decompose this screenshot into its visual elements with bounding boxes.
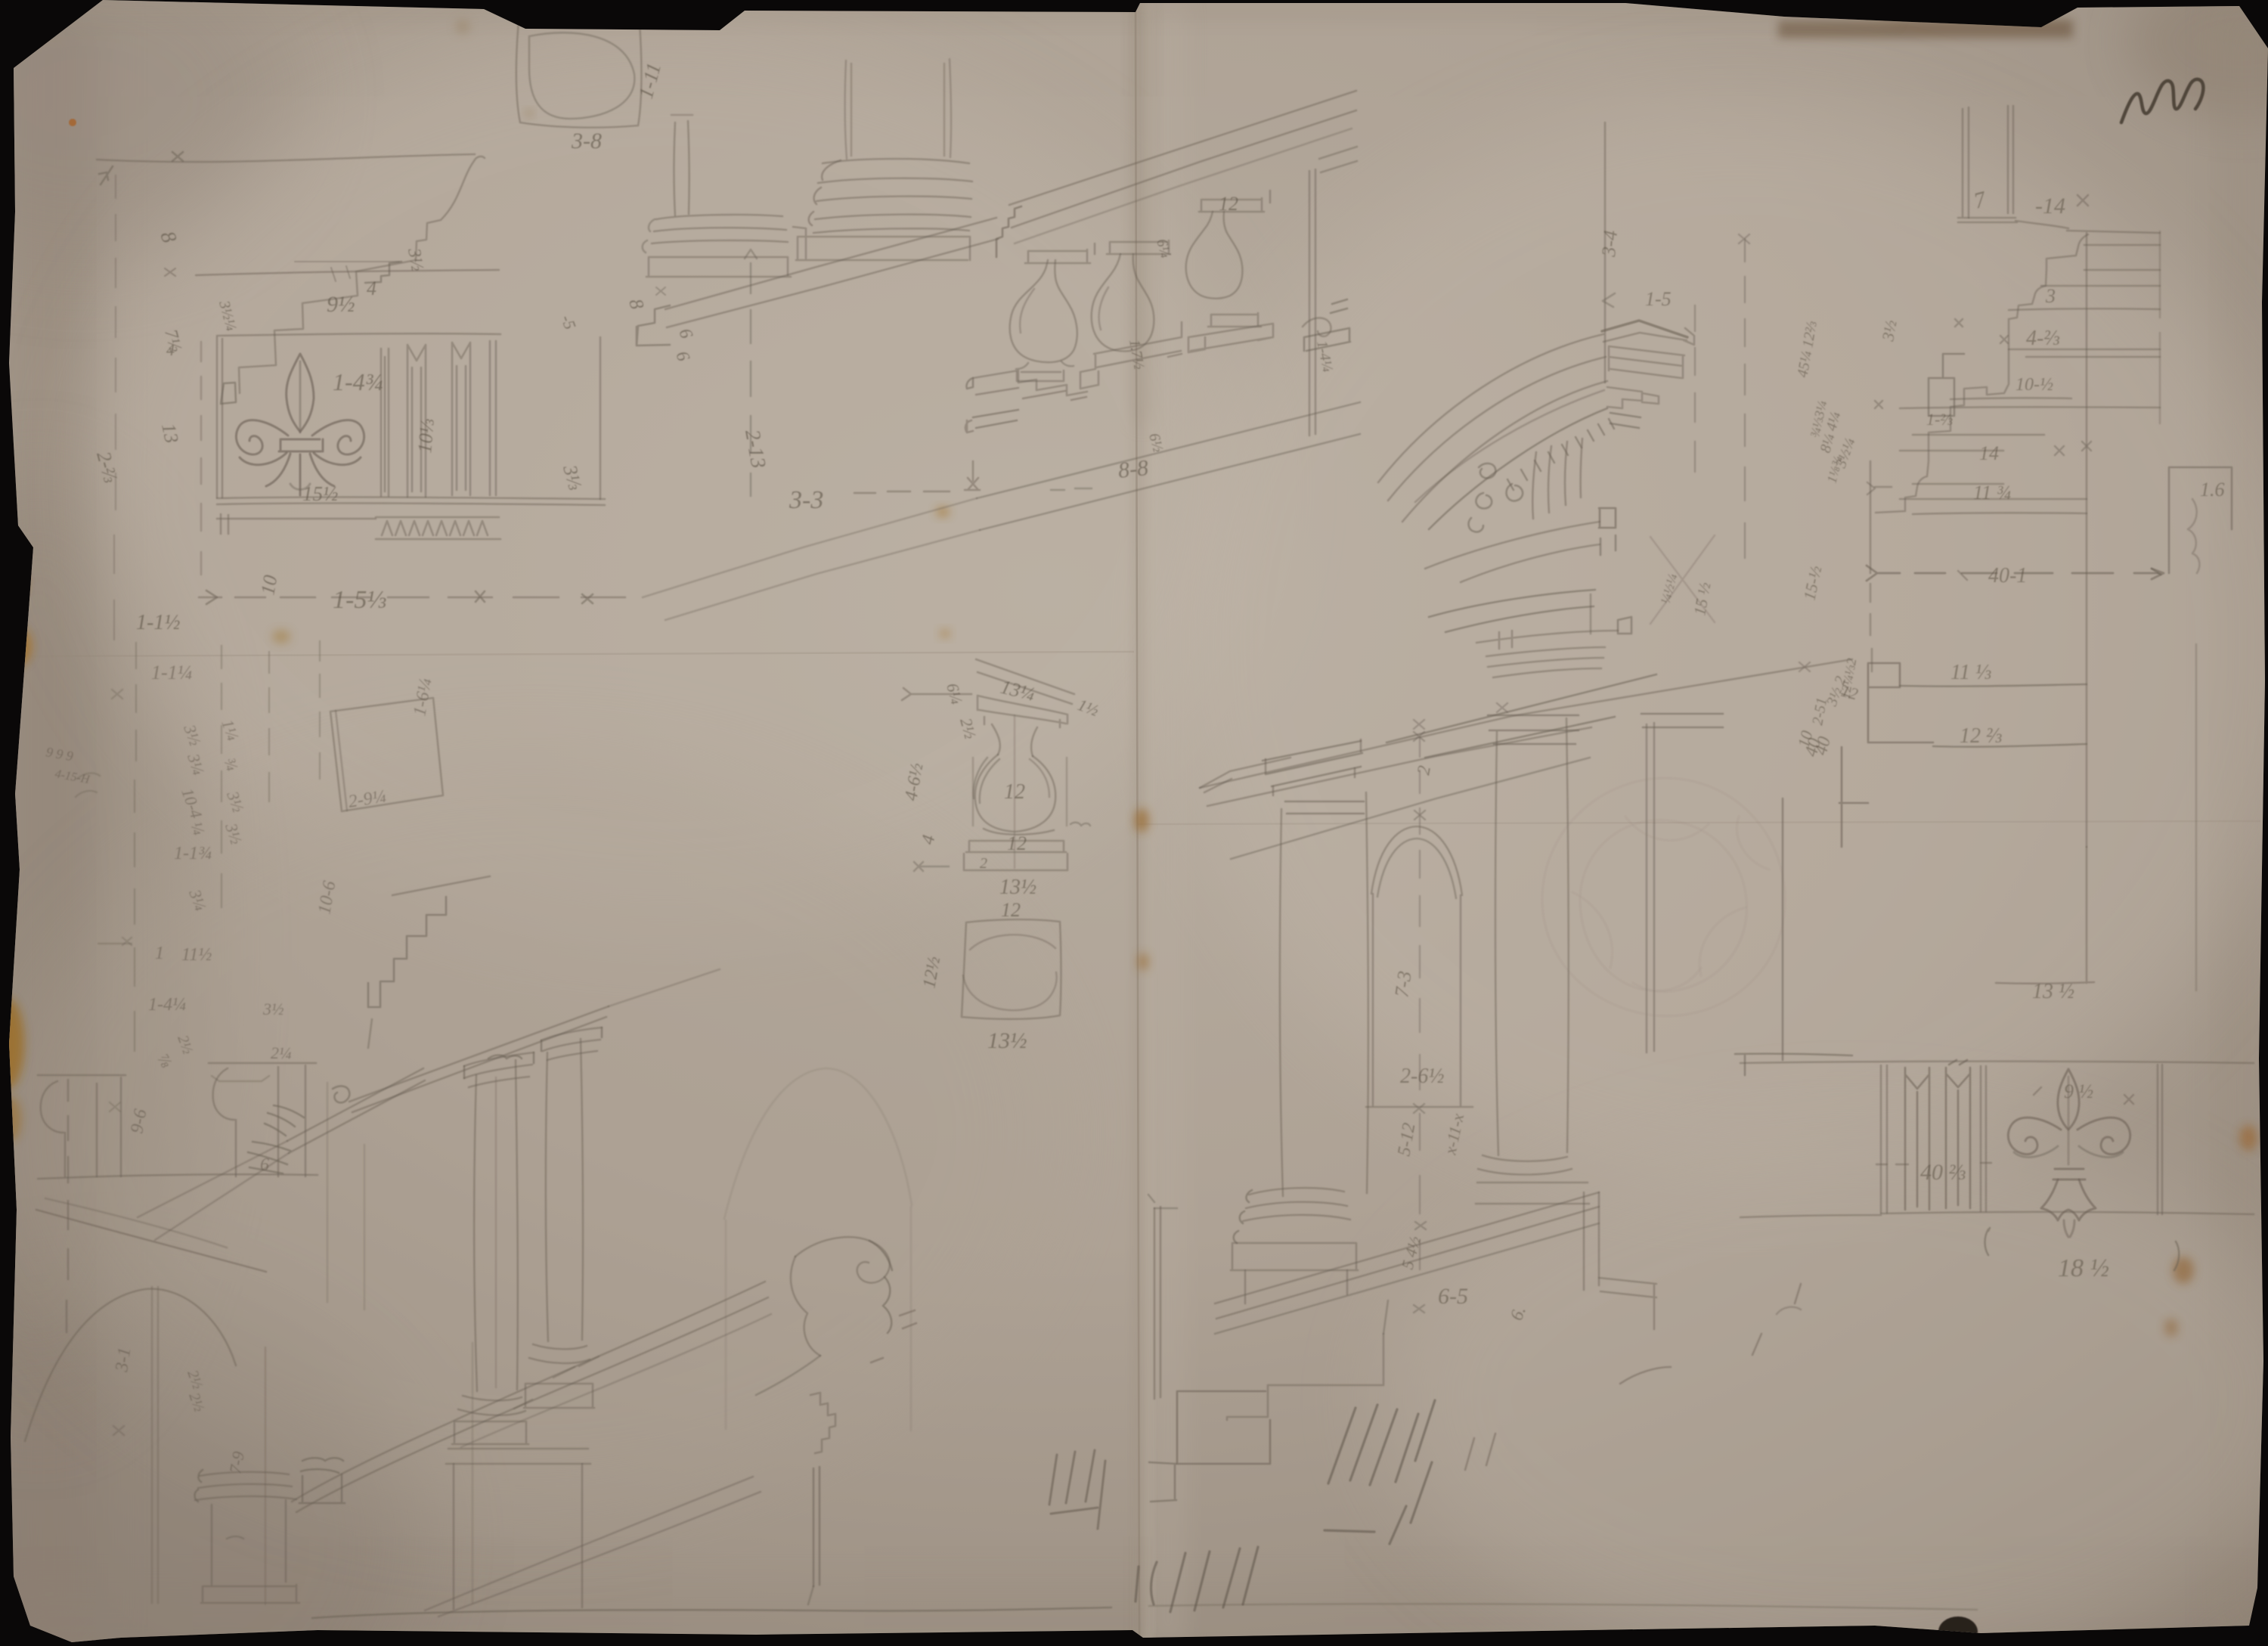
- svg-text:-14: -14: [2035, 194, 2065, 219]
- svg-text:7-3: 7-3: [1390, 969, 1416, 998]
- svg-text:1: 1: [155, 944, 164, 963]
- svg-text:12: 12: [1007, 832, 1027, 854]
- svg-text:40-1: 40-1: [1988, 564, 2027, 587]
- svg-text:3: 3: [2045, 285, 2056, 307]
- svg-text:3-3: 3-3: [789, 486, 823, 514]
- svg-text:1-4¼: 1-4¼: [148, 995, 186, 1015]
- svg-text:12: 12: [1001, 899, 1021, 921]
- svg-text:18 ½: 18 ½: [2058, 1254, 2109, 1282]
- svg-text:6-5: 6-5: [1438, 1284, 1468, 1309]
- svg-text:12 ⅔: 12 ⅔: [1960, 724, 2002, 748]
- svg-text:40 ⅔: 40 ⅔: [1920, 1160, 1966, 1185]
- svg-text:1-4¾: 1-4¾: [333, 368, 383, 395]
- svg-text:11½: 11½: [181, 945, 212, 965]
- svg-text:4-⅔: 4-⅔: [2026, 327, 2059, 350]
- svg-text:4: 4: [367, 277, 376, 299]
- svg-text:3½: 3½: [404, 246, 427, 273]
- svg-text:1-1¾: 1-1¾: [174, 844, 212, 863]
- svg-text:9 ½: 9 ½: [2064, 1080, 2093, 1102]
- svg-text:12: 12: [1004, 780, 1025, 804]
- svg-text:13 ½: 13 ½: [2032, 980, 2074, 1003]
- svg-text:13½: 13½: [999, 876, 1036, 899]
- svg-text:10⅓: 10⅓: [414, 417, 438, 454]
- svg-text:1-5⅓: 1-5⅓: [333, 586, 386, 614]
- svg-text:12: 12: [1219, 193, 1238, 215]
- svg-text:1-⅔: 1-⅔: [1926, 410, 1953, 429]
- svg-text:11 ¾: 11 ¾: [1973, 482, 2011, 504]
- svg-text:2¼: 2¼: [271, 1043, 292, 1062]
- svg-text:9-6: 9-6: [127, 1108, 150, 1135]
- svg-text:3-1: 3-1: [112, 1347, 135, 1374]
- svg-text:3½: 3½: [1878, 318, 1901, 343]
- svg-text:14: 14: [1979, 442, 1999, 464]
- svg-text:3½: 3½: [262, 1000, 284, 1018]
- svg-text:10: 10: [256, 573, 281, 597]
- svg-text:2-6½: 2-6½: [1400, 1065, 1444, 1088]
- svg-text:2: 2: [980, 855, 987, 872]
- svg-text:10-½: 10-½: [2015, 375, 2053, 395]
- svg-text:13½: 13½: [987, 1028, 1027, 1053]
- svg-text:1-5: 1-5: [1645, 288, 1672, 310]
- svg-text:9½: 9½: [327, 292, 355, 317]
- svg-text:1-1¼: 1-1¼: [151, 662, 192, 684]
- svg-text:4: 4: [166, 340, 175, 359]
- svg-text:1.6: 1.6: [2200, 479, 2225, 501]
- svg-text:3-8: 3-8: [571, 129, 602, 153]
- svg-text:1-1½: 1-1½: [136, 611, 180, 634]
- svg-text:11 ⅓: 11 ⅓: [1950, 661, 1991, 684]
- svg-text:15½: 15½: [302, 482, 338, 505]
- svg-text:3-4: 3-4: [1597, 229, 1622, 258]
